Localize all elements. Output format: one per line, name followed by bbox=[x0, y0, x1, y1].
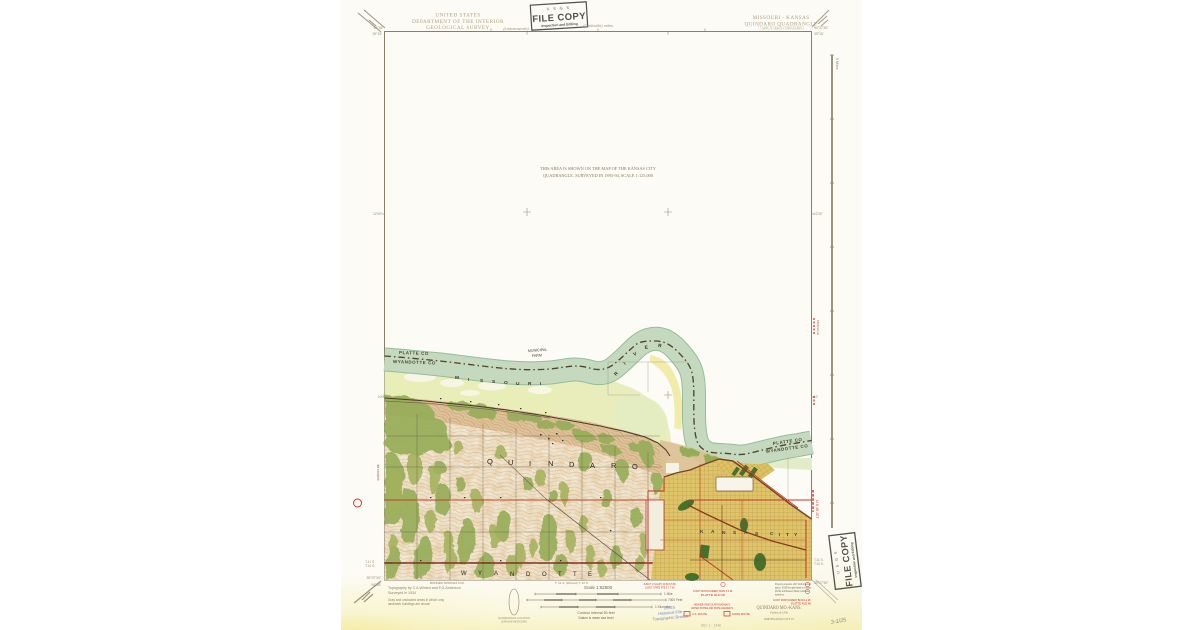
svg-text:7000 Feet: 7000 Feet bbox=[668, 598, 682, 602]
svg-text:U S 40 JCT: U S 40 JCT bbox=[815, 500, 819, 519]
svg-text:Scale 1:62500: Scale 1:62500 bbox=[584, 585, 613, 590]
svg-text:systems: systems bbox=[775, 594, 785, 597]
svg-text:FARM: FARM bbox=[532, 353, 542, 358]
svg-text:T.10 S.: T.10 S. bbox=[365, 564, 375, 568]
svg-text:O: O bbox=[632, 462, 638, 471]
svg-text:94°37'30": 94°37'30" bbox=[814, 26, 829, 30]
svg-text:12'30": 12'30" bbox=[373, 212, 382, 216]
svg-text:PARKVILLE: PARKVILLE bbox=[816, 320, 820, 335]
svg-text:(KANSAS-MISSOURI): (KANSAS-MISSOURI) bbox=[501, 620, 527, 624]
svg-text:W: W bbox=[461, 571, 467, 577]
svg-text:1 Mile: 1 Mile bbox=[664, 592, 673, 596]
svg-text:THIS AREA IS SHOWN ON THE MAP: THIS AREA IS SHOWN ON THE MAP OF THE KAN… bbox=[540, 166, 656, 171]
svg-text:R: R bbox=[611, 461, 617, 470]
svg-text:39°15': 39°15' bbox=[372, 32, 382, 36]
svg-text:BONNER SPRINGS 9 MI.: BONNER SPRINGS 9 MI. bbox=[430, 581, 465, 585]
svg-text:T: T bbox=[558, 572, 562, 578]
svg-text:Q: Q bbox=[487, 457, 493, 466]
svg-text:T: T bbox=[573, 572, 577, 578]
svg-text:C: C bbox=[770, 531, 774, 537]
svg-text:Y: Y bbox=[478, 571, 482, 577]
svg-text:PLATTE RLD MI: PLATTE RLD MI bbox=[791, 602, 811, 606]
svg-text:GEOLOGICAL SURVEY: GEOLOGICAL SURVEY bbox=[426, 25, 490, 31]
svg-text:(Leavenworth): (Leavenworth) bbox=[503, 26, 529, 31]
svg-text:5 Miles: 5 Miles bbox=[835, 58, 839, 70]
svg-text:A: A bbox=[590, 461, 595, 470]
svg-text:UNITED STATES AND STATE HIGHWA: UNITED STATES AND STATE HIGHWAYS bbox=[691, 606, 733, 610]
svg-text:O: O bbox=[542, 572, 547, 578]
svg-text:(Smithville) miles: (Smithville) miles bbox=[583, 23, 613, 28]
svg-text:NORTH KANSAS CITY 15': NORTH KANSAS CITY 15' bbox=[764, 618, 795, 621]
svg-text:STATE ROUTE: STATE ROUTE bbox=[732, 612, 750, 616]
svg-text:landmark buildings are shown: landmark buildings are shown bbox=[388, 602, 430, 606]
svg-text:10': 10' bbox=[814, 395, 819, 399]
svg-text:T.10 S.: T.10 S. bbox=[814, 562, 824, 566]
svg-text:Datum is mean sea level: Datum is mean sea level bbox=[579, 616, 614, 620]
svg-text:QUADRANGLE LOCATION: QUADRANGLE LOCATION bbox=[498, 616, 530, 620]
svg-text:PLATTE RLD MI: PLATTE RLD MI bbox=[701, 593, 725, 597]
svg-text:O: O bbox=[504, 380, 508, 386]
svg-text:Surveyed in 1934: Surveyed in 1934 bbox=[388, 591, 416, 595]
svg-text:12'30": 12'30" bbox=[814, 212, 823, 216]
svg-text:QUINDARO MO.-KANS.: QUINDARO MO.-KANS. bbox=[757, 606, 802, 611]
svg-text:E: E bbox=[588, 572, 592, 578]
svg-text:A: A bbox=[494, 571, 498, 577]
svg-text:39°15': 39°15' bbox=[814, 32, 824, 36]
svg-text:A: A bbox=[711, 529, 715, 535]
svg-text:N: N bbox=[548, 459, 553, 468]
svg-text:Edition of 1936: Edition of 1936 bbox=[770, 612, 788, 615]
svg-text:M: M bbox=[455, 375, 459, 381]
svg-text:Topography by C.A.Whited and F: Topography by C.A.Whited and F.G.Anderso… bbox=[388, 586, 461, 590]
svg-text:T. 11 S. (Wolcott) T. 10 S.: T. 11 S. (Wolcott) T. 10 S. bbox=[555, 581, 589, 585]
svg-text:U.S. ROUTE: U.S. ROUTE bbox=[692, 612, 707, 616]
svg-text:N: N bbox=[510, 572, 514, 578]
svg-text:LEAVENWORTH 10 MI.: LEAVENWORTH 10 MI. bbox=[376, 464, 380, 481]
svg-text:T: T bbox=[786, 532, 789, 538]
svg-text:7.5 MINUTE SERIES (TOPOGRAPHIC: 7.5 MINUTE SERIES (TOPOGRAPHIC) bbox=[758, 27, 804, 31]
svg-text:I: I bbox=[529, 459, 531, 468]
svg-text:D: D bbox=[569, 460, 575, 469]
svg-text:94°45': 94°45' bbox=[373, 26, 383, 30]
svg-text:39°07'30": 39°07'30" bbox=[366, 576, 381, 580]
svg-text:R: R bbox=[528, 381, 532, 387]
svg-text:DEC 1 - 1948: DEC 1 - 1948 bbox=[701, 624, 721, 628]
svg-text:D: D bbox=[526, 572, 531, 578]
svg-text:PLATTE CO: PLATTE CO bbox=[399, 350, 429, 356]
svg-text:U: U bbox=[508, 458, 513, 467]
svg-text:Contour interval 50 feet: Contour interval 50 feet bbox=[577, 611, 614, 615]
svg-text:MISSOURI - KANSAS: MISSOURI - KANSAS bbox=[753, 15, 810, 21]
svg-text:A: A bbox=[744, 530, 748, 536]
svg-text:K: K bbox=[700, 529, 704, 535]
svg-text:10': 10' bbox=[378, 395, 383, 399]
svg-text:UNITED STATES: UNITED STATES bbox=[435, 13, 480, 19]
svg-text:U: U bbox=[516, 381, 520, 387]
svg-text:N: N bbox=[722, 530, 726, 536]
svg-text:JUNCT STATE RTE 5 1.7 MI.: JUNCT STATE RTE 5 1.7 MI. bbox=[645, 586, 675, 590]
